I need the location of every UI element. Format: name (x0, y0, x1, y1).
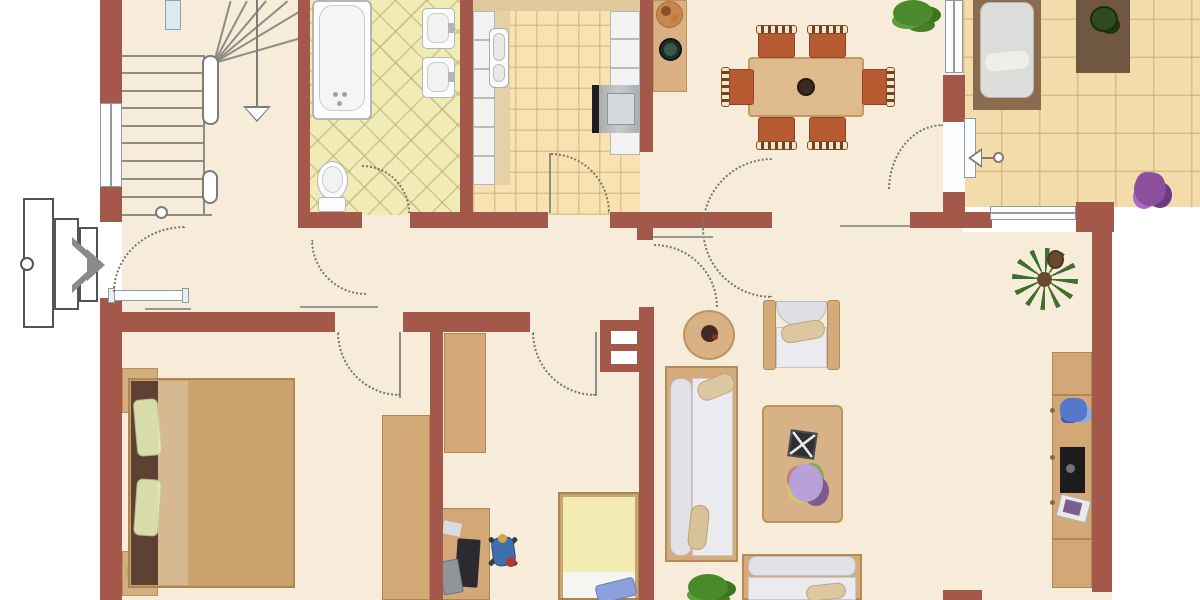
stair-tread (122, 196, 204, 198)
built-in-cupboard (600, 320, 639, 372)
kitchen-sink-basin (493, 64, 505, 82)
terrace-potted-plant (1090, 6, 1118, 32)
built-in-cupboard-shelf (611, 331, 637, 344)
sofa-two-seat-back (748, 556, 856, 576)
sideboard-knob (1050, 455, 1055, 460)
wall-stairs-bathroom (298, 0, 310, 215)
terrace-door-arrow-icon (971, 151, 981, 165)
wall-dining-terrace-top (943, 75, 965, 122)
threshold-line (840, 225, 910, 227)
wall-left-top (100, 0, 122, 103)
dining-chair-rail (721, 67, 730, 107)
wall-hall-b (410, 212, 548, 228)
wall-hall-d (910, 212, 992, 228)
bed-duvet-fold (158, 381, 188, 585)
table-centerpiece (797, 78, 815, 96)
stove-control-strip (592, 85, 599, 133)
wall-kitchen-dining (640, 0, 653, 152)
tv-sideboard-seam (1053, 394, 1091, 396)
coffee-table-flowers (789, 464, 823, 502)
dining-chair-rail (886, 67, 895, 107)
dining-chair-rail (807, 141, 848, 150)
office-chair-accent (506, 557, 516, 567)
entrance-arrow-icon (87, 249, 105, 281)
stair-post-circle (155, 206, 168, 219)
stair-tread (122, 142, 204, 144)
wall-kidsroom-living (639, 307, 654, 600)
window-dining-terrace (945, 0, 963, 73)
stair-tread (122, 90, 204, 92)
wall-left-mid (100, 187, 122, 222)
window-left (100, 103, 122, 187)
kitchen-dining-doorway (640, 152, 653, 215)
toilet-tank (318, 197, 346, 212)
dining-chair-rail (756, 141, 797, 150)
sideboard-knob (1050, 500, 1055, 505)
sofa-pillow (805, 582, 846, 600)
stair-tread (122, 55, 204, 57)
stair-direction-arrow-icon (246, 108, 268, 120)
wall-hall-stub (637, 212, 653, 240)
wall-hall-a (298, 212, 362, 228)
sink-basin (427, 13, 449, 43)
dining-chair (758, 30, 795, 58)
yucca-plant-center (1037, 272, 1052, 287)
bathtub-drain (337, 101, 342, 106)
armchair-frame (827, 300, 840, 370)
window-living-terrace (990, 206, 1076, 220)
window-stairs-top (165, 0, 181, 30)
armchair-frame (763, 300, 776, 370)
kitchen-worktop-top (473, 0, 640, 11)
stair-tread (122, 125, 204, 127)
stair-newel-lower (202, 170, 218, 204)
counter-pot-inner (664, 43, 677, 56)
dining-chair (809, 30, 846, 58)
coffee-table-board-game (787, 429, 817, 459)
wall-stub-bottom (943, 590, 982, 600)
sideboard-decor-blue (1060, 398, 1087, 422)
dining-chair (726, 69, 754, 105)
sink-tap (448, 23, 454, 33)
wall-bathroom-kitchen (460, 0, 473, 215)
dining-chair-rail (807, 25, 848, 34)
stair-newel (202, 55, 219, 125)
terrace-flowers (1134, 172, 1166, 206)
side-table-decor-dot (712, 334, 718, 340)
bathtub-tap (342, 92, 347, 97)
wall-bedroom-kidsroom (430, 332, 443, 600)
wall-left-bottom (100, 298, 122, 600)
office-chair-accent (498, 534, 507, 543)
sink-tap (448, 72, 454, 82)
wall-right (1092, 228, 1112, 592)
wall-bedroom-top (122, 312, 335, 332)
floor-plan-canvas (0, 0, 1200, 600)
threshold-line (300, 306, 378, 308)
plant-living-room (688, 574, 728, 600)
terrace-door-opening (943, 122, 965, 192)
kidsroom-door-leaf (595, 332, 597, 396)
stair-tread (122, 160, 204, 162)
entrance-post (20, 257, 34, 271)
dining-chair-rail (756, 25, 797, 34)
sink-basin (427, 62, 449, 92)
food-item (661, 6, 671, 16)
food-item (671, 14, 679, 22)
threshold-line (653, 236, 713, 238)
stair-tread (122, 107, 204, 109)
built-in-cupboard-shelf (611, 351, 637, 364)
stair-direction-line (256, 0, 258, 107)
terrace-door-arrow-circle (993, 152, 1004, 163)
plant-dining (893, 0, 933, 26)
tv-sideboard-seam (1053, 538, 1091, 540)
stair-tread (122, 178, 204, 180)
threshold-line (145, 308, 191, 310)
kids-closet (444, 333, 486, 453)
stair-tread (122, 72, 204, 74)
toilet-seat (322, 166, 343, 193)
kitchen-cabinets-right (610, 11, 640, 155)
sideboard-knob (1050, 408, 1055, 413)
wall-kidsroom-top (403, 312, 530, 332)
bathtub-tap (333, 92, 338, 97)
pinecone-decor (1047, 250, 1064, 269)
kitchen-sink-basin (493, 33, 505, 61)
kids-bed-blanket (563, 497, 635, 572)
television-stand (1066, 464, 1075, 473)
bedroom-wardrobe (382, 415, 430, 600)
terrace-lounger (980, 2, 1034, 98)
stove-door (607, 93, 635, 125)
